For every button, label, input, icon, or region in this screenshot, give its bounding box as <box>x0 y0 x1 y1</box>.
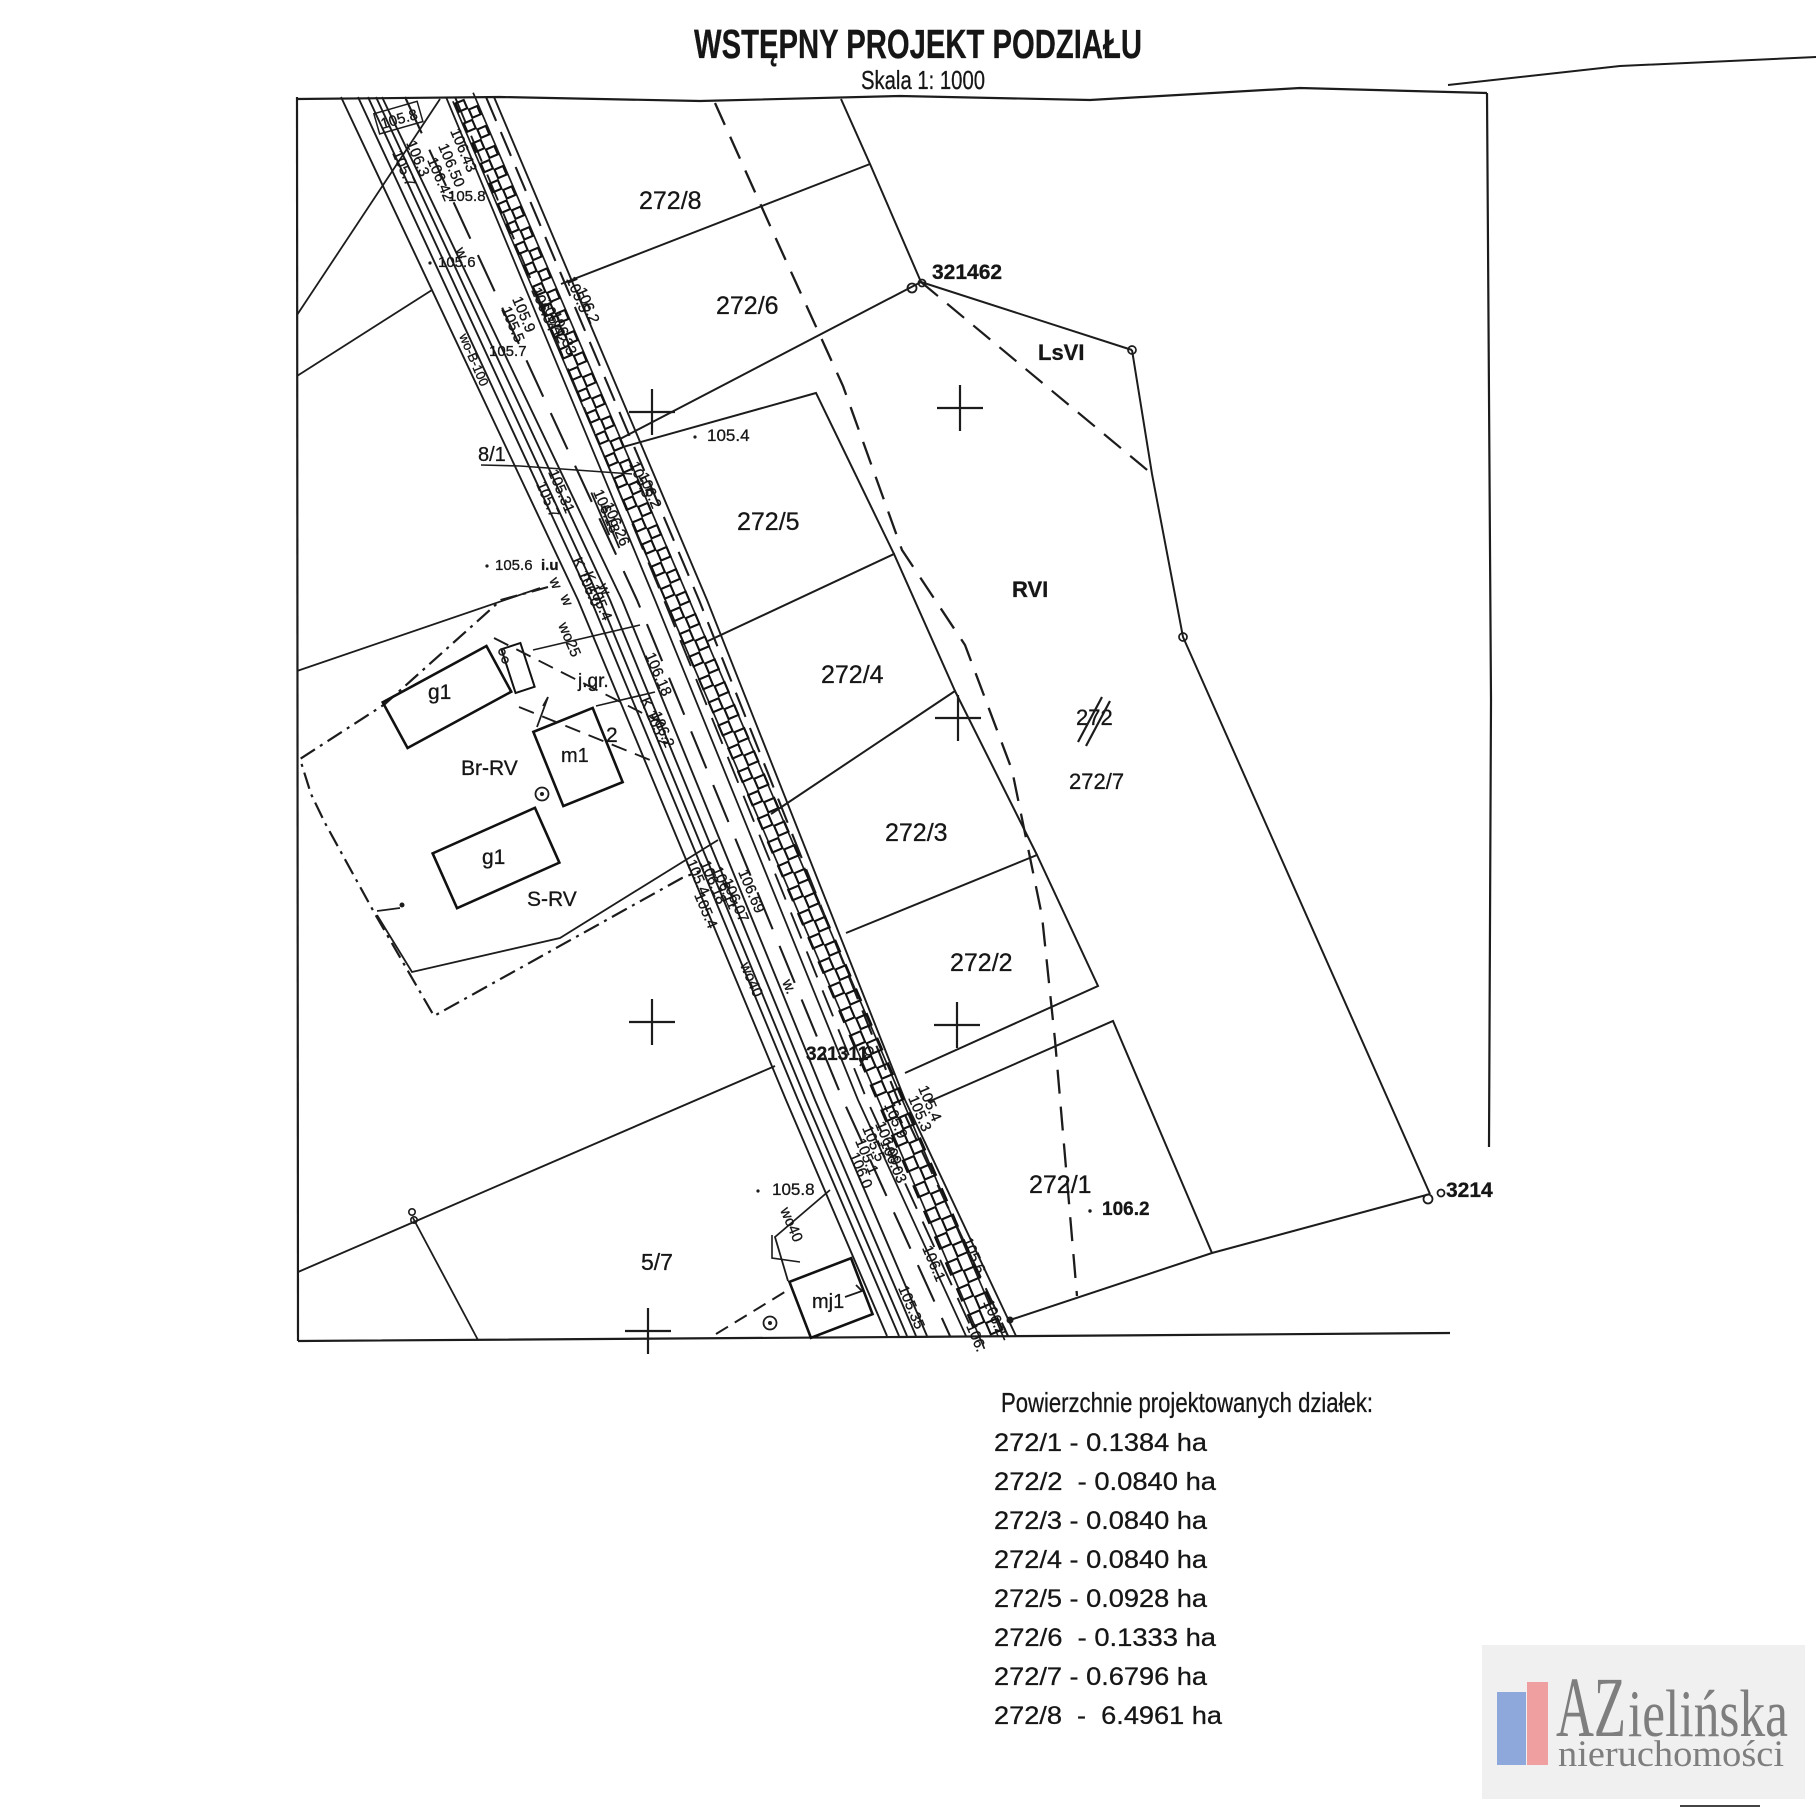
svg-text:2: 2 <box>606 724 618 747</box>
svg-text:RVI: RVI <box>1012 577 1048 602</box>
svg-text:272/8: 272/8 <box>639 187 702 215</box>
svg-text:105.35: 105.35 <box>894 1283 928 1332</box>
svg-text:8/1: 8/1 <box>478 444 506 466</box>
svg-text:272/3 - 0.0840 ha: 272/3 - 0.0840 ha <box>994 1507 1207 1535</box>
svg-text:WSTĘPNY PROJEKT PODZIAŁU: WSTĘPNY PROJEKT PODZIAŁU <box>694 21 1142 67</box>
svg-text:nieruchomości: nieruchomości <box>1558 1734 1784 1775</box>
svg-text:272/2 - 0.0840 ha: 272/2 - 0.0840 ha <box>994 1468 1216 1496</box>
svg-text:Powierzchnie projektowanych dz: Powierzchnie projektowanych działek: <box>1001 1387 1373 1418</box>
svg-text:106.2: 106.2 <box>1102 1199 1150 1220</box>
svg-text:S-RV: S-RV <box>527 888 577 911</box>
svg-text:w: w <box>556 591 576 609</box>
svg-text:m1: m1 <box>561 745 589 767</box>
svg-text:272: 272 <box>1076 705 1113 730</box>
svg-text:105.4: 105.4 <box>707 426 750 445</box>
svg-text:272/3: 272/3 <box>885 819 948 847</box>
svg-text:g1: g1 <box>428 681 451 704</box>
svg-text:w: w <box>545 574 565 592</box>
svg-text:wo40: wo40 <box>736 959 766 1000</box>
svg-text:272/4 - 0.0840 ha: 272/4 - 0.0840 ha <box>994 1546 1207 1574</box>
svg-text:272/6: 272/6 <box>716 292 779 320</box>
svg-text:272/7 - 0.6796 ha: 272/7 - 0.6796 ha <box>994 1663 1207 1691</box>
svg-text:321462: 321462 <box>932 261 1002 284</box>
svg-text:272/1 - 0.1384 ha: 272/1 - 0.1384 ha <box>994 1429 1207 1457</box>
svg-text:Skala 1: 1000: Skala 1: 1000 <box>861 65 985 95</box>
svg-text:105.6: 105.6 <box>495 557 533 574</box>
svg-text:106.18: 106.18 <box>641 650 675 699</box>
svg-text:272/5: 272/5 <box>737 508 800 536</box>
svg-text:105.7: 105.7 <box>489 343 527 360</box>
svg-text:272/5 - 0.0928 ha: 272/5 - 0.0928 ha <box>994 1585 1207 1613</box>
svg-text:w.: w. <box>778 976 800 997</box>
svg-text:wo40: wo40 <box>776 1204 806 1245</box>
svg-text:mj1: mj1 <box>812 1291 844 1313</box>
svg-text:g1: g1 <box>482 846 505 869</box>
svg-text:Br-RV: Br-RV <box>461 757 518 780</box>
svg-text:3214: 3214 <box>1446 1179 1493 1202</box>
svg-text:272/8 - 6.4961 ha: 272/8 - 6.4961 ha <box>994 1702 1222 1730</box>
svg-text:105.8: 105.8 <box>448 188 486 205</box>
svg-text:105.6: 105.6 <box>438 254 476 271</box>
svg-text:106.2: 106.2 <box>979 1297 1009 1338</box>
svg-text:LsVI: LsVI <box>1038 340 1084 365</box>
svg-text:321311: 321311 <box>806 1044 869 1065</box>
svg-text:272/2: 272/2 <box>950 949 1013 977</box>
svg-text:i.u: i.u <box>541 557 559 574</box>
svg-text:272/4: 272/4 <box>821 661 884 689</box>
svg-text:272/6 - 0.1333 ha: 272/6 - 0.1333 ha <box>994 1624 1216 1652</box>
svg-text:272/1: 272/1 <box>1029 1171 1092 1199</box>
svg-text:106.: 106. <box>962 1321 989 1355</box>
svg-text:5/7: 5/7 <box>641 1249 673 1275</box>
svg-text:105.8: 105.8 <box>772 1180 815 1199</box>
svg-text:272/7: 272/7 <box>1069 769 1124 794</box>
